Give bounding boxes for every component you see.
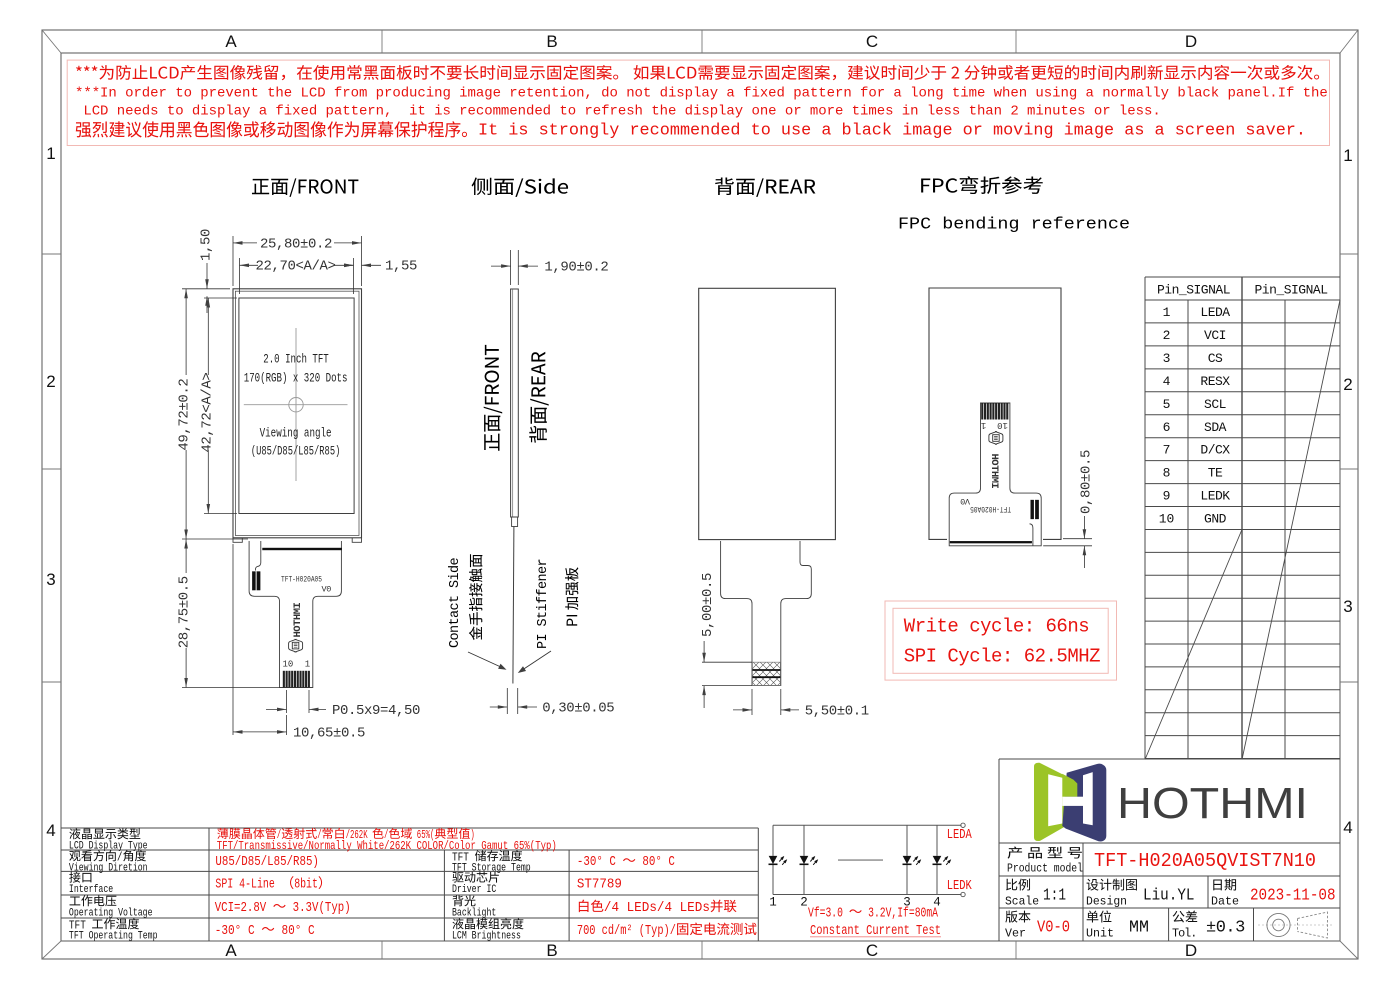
svg-text:2: 2 [1163,328,1171,343]
svg-text:LCM Brightness: LCM Brightness [452,931,521,943]
svg-text:V0-0: V0-0 [1037,918,1070,937]
svg-text:***In order to prevent the LCD: ***In order to prevent the LCD from prod… [75,86,1328,102]
svg-text:Ver: Ver [1005,927,1026,941]
svg-text:Unit: Unit [1086,927,1114,941]
svg-text:1:1: 1:1 [1043,886,1066,905]
svg-text:RESX: RESX [1200,374,1230,389]
svg-text:(U85/D85/L85/R85): (U85/D85/L85/R85) [251,445,341,459]
svg-text:TFT-H020A05: TFT-H020A05 [970,504,1011,514]
svg-text:2: 2 [800,896,808,910]
svg-text:P0.5x9=4,50: P0.5x9=4,50 [332,703,420,719]
svg-text:3.2V,If=80mA: 3.2V,If=80mA [862,906,938,921]
svg-text:LEDA: LEDA [1200,305,1230,320]
svg-text:10: 10 [1159,512,1175,527]
svg-text:1: 1 [769,896,777,910]
svg-text:49,72±0.2: 49,72±0.2 [176,379,192,451]
svg-text:U85/D85/L85/R85): U85/D85/L85/R85) [215,855,319,870]
svg-text:CS: CS [1208,351,1223,366]
svg-text:HOTHMI: HOTHMI [1117,779,1308,828]
svg-text:10: 10 [997,420,1008,430]
svg-text:Viewing angle: Viewing angle [260,426,332,440]
svg-text:6: 6 [1163,420,1171,435]
svg-text:2.0 Inch TFT: 2.0 Inch TFT [263,353,329,367]
svg-text:5: 5 [1163,397,1171,412]
svg-text:Vf=3.0: Vf=3.0 [808,906,849,921]
svg-text:SPI 4-Line: SPI 4-Line [215,878,280,893]
svg-text:LEDA: LEDA [947,828,973,843]
svg-text:VCI: VCI [1204,328,1226,343]
svg-text:700 cd/m² (Typ)/: 700 cd/m² (Typ)/ [577,924,676,939]
svg-text:4: 4 [46,821,55,840]
svg-text:1: 1 [981,420,986,430]
svg-text:SDA: SDA [1204,420,1227,435]
svg-text:8bit: 8bit [294,878,318,893]
svg-text:ST7789: ST7789 [577,878,622,893]
svg-text:80° C: 80° C [636,855,675,870]
svg-text:Backlight: Backlight [452,908,496,920]
svg-text:C: C [866,941,878,960]
svg-text:HOTHMI: HOTHMI [292,602,304,637]
svg-text:-30° C: -30° C [215,924,262,939]
svg-text:1,90±0.2: 1,90±0.2 [544,260,608,276]
svg-text:LCD needs to display a fixed p: LCD needs to display a fixed pattern, it… [75,104,1161,120]
svg-text:MM: MM [1129,918,1149,937]
svg-text:4: 4 [1343,818,1352,837]
svg-text:Design: Design [1086,895,1127,909]
svg-text:25,80±0.2: 25,80±0.2 [260,236,332,252]
svg-text:V0: V0 [322,585,332,595]
svg-text:TE: TE [1208,466,1223,481]
svg-text:±0.3: ±0.3 [1206,919,1245,938]
svg-text:10: 10 [282,660,293,670]
svg-text:Scale: Scale [1005,895,1039,909]
svg-text:2: 2 [1343,375,1352,394]
svg-text:7: 7 [1163,443,1171,458]
svg-text:C: C [866,32,878,51]
svg-text:2023-11-08: 2023-11-08 [1250,886,1336,905]
svg-text:3.3V(Typ): 3.3V(Typ) [286,901,351,916]
svg-text:Date: Date [1211,895,1239,909]
svg-text:Product model: Product model [1007,862,1083,876]
svg-text:1: 1 [46,144,55,163]
svg-text:V0: V0 [960,496,970,506]
svg-text:A: A [225,941,237,960]
svg-text:3: 3 [46,570,55,589]
svg-text:4: 4 [1163,374,1171,389]
svg-text:5,00±0.5: 5,00±0.5 [700,573,716,637]
svg-text:D/CX: D/CX [1200,443,1230,458]
svg-text:28,75±0.5: 28,75±0.5 [176,576,192,648]
svg-text:0,80±0.5: 0,80±0.5 [1078,450,1094,514]
svg-text:D: D [1185,941,1197,960]
svg-text:TFT Storage Temp: TFT Storage Temp [452,863,531,875]
svg-text:80° C: 80° C [275,924,315,939]
svg-text:3: 3 [1343,597,1352,616]
svg-text:Write cycle: 66ns: Write cycle: 66ns [904,616,1089,638]
svg-text:LEDK: LEDK [1200,489,1230,504]
svg-text:10,65±0.5: 10,65±0.5 [293,725,365,741]
svg-text:8: 8 [1163,466,1171,481]
svg-text:B: B [546,32,557,51]
svg-text:Pin_SIGNAL: Pin_SIGNAL [1157,283,1230,298]
svg-text:42,72<A/A>: 42,72<A/A> [200,373,216,453]
svg-text:/4 LEDs/4 LEDs: /4 LEDs/4 LEDs [604,901,710,916]
svg-text:TFT/Transmissive/Normally Whit: TFT/Transmissive/Normally White/262K COL… [217,839,557,853]
svg-text:-30° C: -30° C [577,855,623,870]
svg-text:TFT Operating Temp: TFT Operating Temp [69,931,158,943]
svg-text:1,55: 1,55 [385,259,417,275]
svg-text:22,70<A/A>: 22,70<A/A> [255,259,335,275]
svg-text:HOTHMI: HOTHMI [988,454,1000,489]
svg-text:1: 1 [305,660,310,670]
svg-text:FPC bending reference: FPC bending reference [898,215,1130,234]
svg-text:Viewing Diretion: Viewing Diretion [69,863,148,875]
svg-text:170(RGB) x 320 Dots: 170(RGB) x 320 Dots [244,372,348,386]
svg-text:PI Stiffener: PI Stiffener [536,559,551,649]
svg-text:B: B [546,941,557,960]
svg-text:Driver IC: Driver IC [452,884,497,896]
svg-text:2: 2 [46,372,55,391]
svg-text:LEDK: LEDK [947,879,973,894]
svg-text:GND: GND [1204,512,1227,527]
svg-text:1: 1 [1163,305,1171,320]
svg-text:1,50: 1,50 [199,229,215,261]
svg-text:3: 3 [1163,351,1171,366]
svg-text:0,30±0.05: 0,30±0.05 [542,700,614,716]
svg-text:Pin_SIGNAL: Pin_SIGNAL [1254,283,1327,298]
svg-text:Contact Side: Contact Side [448,557,463,648]
svg-text:1: 1 [1343,146,1352,165]
svg-text:It is strongly recommended to: It is strongly recommended to use a blac… [478,121,1306,140]
svg-text:Liu.YL: Liu.YL [1143,886,1195,905]
svg-text:TFT-H020A05: TFT-H020A05 [281,574,322,584]
svg-text:SPI Cycle: 62.5MHZ: SPI Cycle: 62.5MHZ [904,646,1100,668]
svg-text:A: A [225,32,237,51]
svg-text:SCL: SCL [1204,397,1226,412]
svg-text:VCI=2.8V: VCI=2.8V [215,901,273,916]
svg-text:5,50±0.1: 5,50±0.1 [805,703,869,719]
svg-text:Tol.: Tol. [1172,927,1196,941]
svg-text:TFT-H020A05QVIST7N10: TFT-H020A05QVIST7N10 [1094,850,1316,872]
svg-text:9: 9 [1163,489,1171,504]
svg-text:D: D [1185,32,1197,51]
svg-text:LCD Display Type: LCD Display Type [69,841,148,853]
svg-text:Interface: Interface [69,884,113,896]
